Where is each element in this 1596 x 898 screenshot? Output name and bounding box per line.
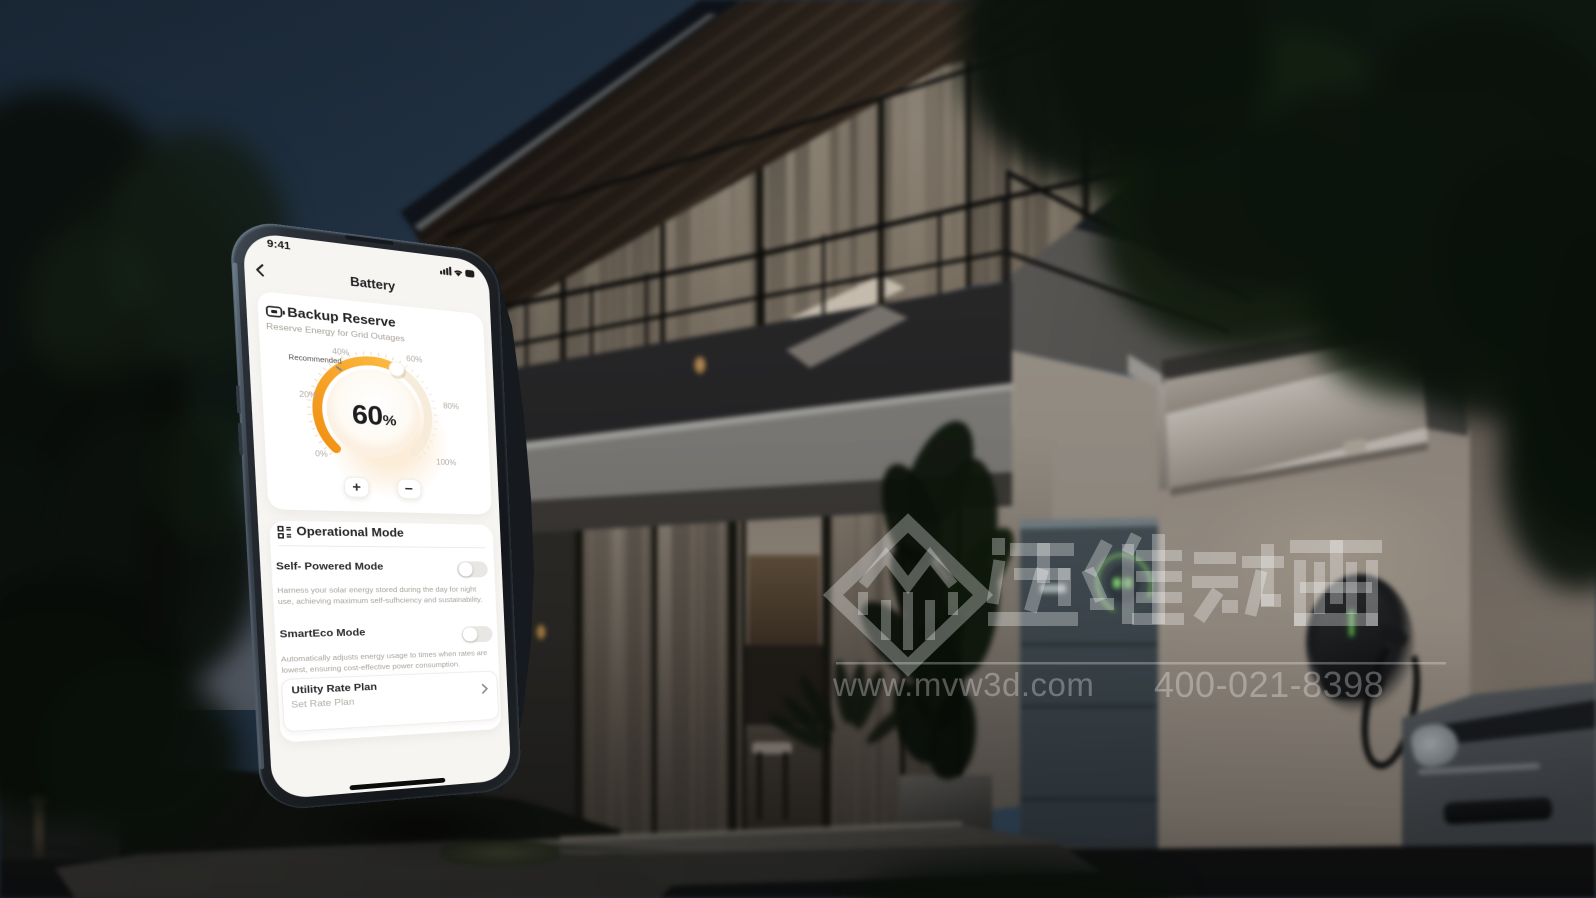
svg-text:www.mvw3d.com: www.mvw3d.com [832, 666, 1094, 703]
svg-text:400-021-8398: 400-021-8398 [1154, 664, 1384, 705]
